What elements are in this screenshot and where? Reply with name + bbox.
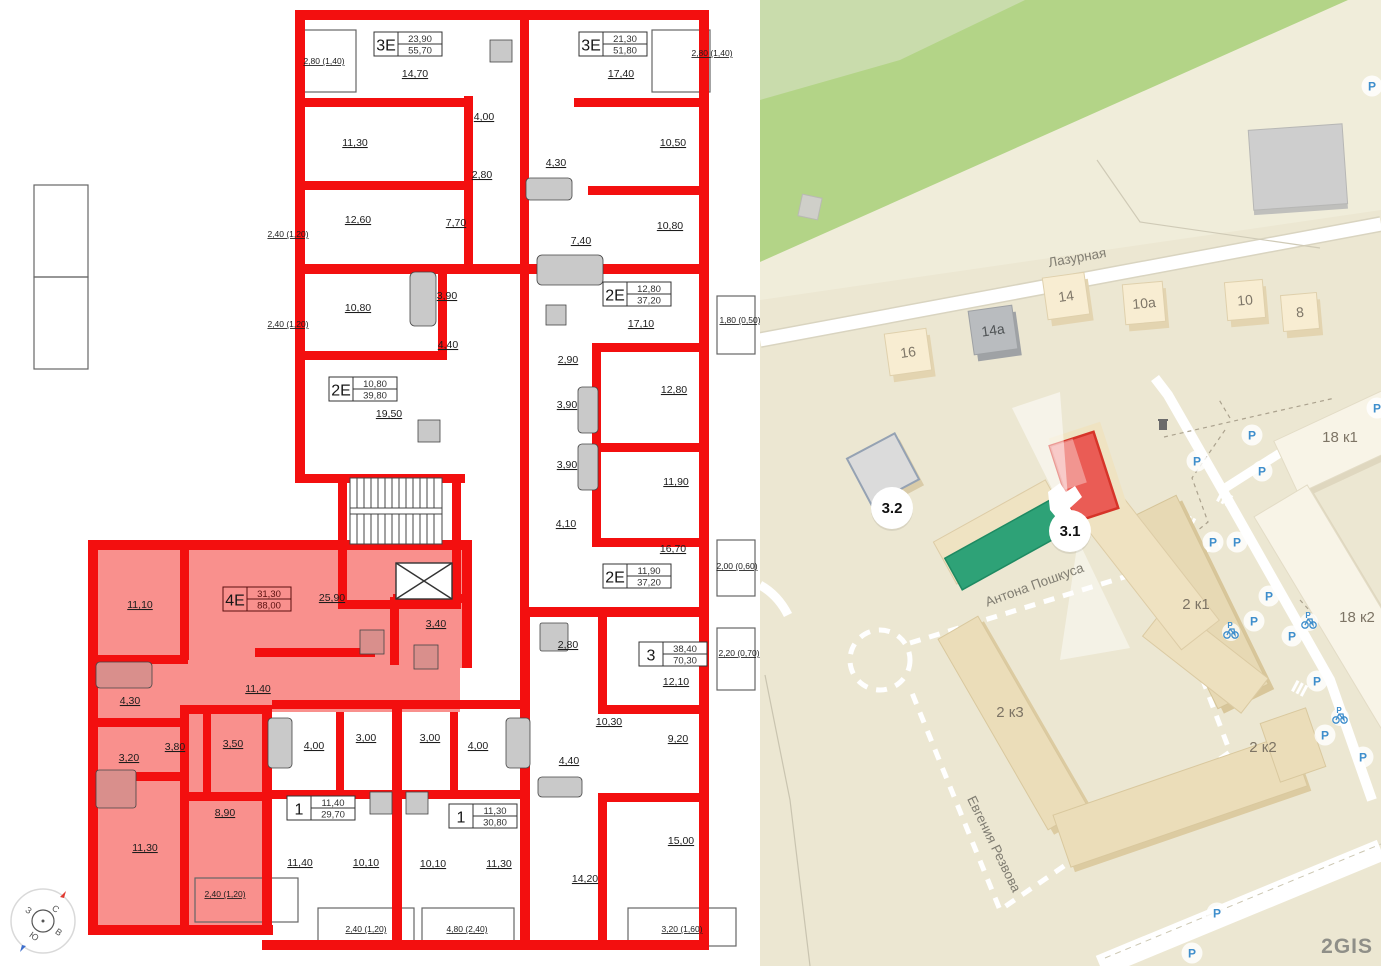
map-building-14а[interactable]: 14а (968, 305, 1022, 362)
room-area-label: 11,10 (127, 599, 153, 611)
svg-text:37,20: 37,20 (637, 296, 661, 307)
svg-text:30,80: 30,80 (483, 818, 507, 829)
svg-text:2Е: 2Е (605, 288, 625, 305)
parking-marker[interactable]: P (1307, 671, 1328, 692)
room-area-label: 4,40 (559, 755, 580, 767)
room-area-label: 25,90 (319, 592, 345, 604)
room-area-label: 2,40 (1,20) (267, 229, 308, 239)
room-area-label: 11,40 (245, 683, 271, 695)
room-area-label: 2,80 (1,40) (691, 48, 732, 58)
svg-text:3.1: 3.1 (1060, 523, 1081, 540)
svg-text:P: P (1305, 611, 1311, 620)
svg-text:P: P (1213, 907, 1221, 921)
building-number-2 к2: 2 к2 (1249, 739, 1276, 756)
building-number-2 к1: 2 к1 (1182, 596, 1209, 613)
room-area-label: 3,00 (420, 732, 441, 744)
room-area-label: 2,80 (1,40) (303, 56, 344, 66)
room-area-label: 4,00 (304, 740, 325, 752)
room-area-label: 2,80 (472, 169, 493, 181)
room-area-label: 3,50 (223, 738, 244, 750)
svg-text:2Е: 2Е (331, 383, 351, 400)
parking-marker[interactable]: P (1259, 586, 1280, 607)
svg-text:1: 1 (457, 810, 466, 827)
room-area-label: 3,00 (356, 732, 377, 744)
svg-text:P: P (1258, 465, 1266, 479)
parking-marker[interactable]: P (1282, 626, 1303, 647)
parking-marker[interactable]: P (1207, 903, 1228, 924)
room-area-label: 2,40 (1,20) (204, 889, 245, 899)
gray-building-large[interactable] (1248, 124, 1348, 215)
room-area-label: 16,70 (660, 543, 686, 555)
svg-text:P: P (1359, 751, 1367, 765)
svg-text:P: P (1373, 402, 1381, 416)
svg-text:P: P (1193, 455, 1201, 469)
room-area-label: 2,00 (0,60) (716, 561, 757, 571)
room-area-label: 17,40 (608, 68, 634, 80)
svg-text:P: P (1250, 615, 1258, 629)
room-area-label: 10,80 (345, 302, 371, 314)
svg-text:P: P (1248, 429, 1256, 443)
svg-text:10,80: 10,80 (363, 379, 387, 390)
svg-text:31,30: 31,30 (257, 589, 281, 600)
building-number-18 к2: 18 к2 (1339, 609, 1375, 626)
room-area-label: 11,40 (287, 857, 313, 869)
room-area-label: 4,30 (546, 157, 567, 169)
parking-marker[interactable]: P (1252, 461, 1273, 482)
parking-marker[interactable]: P (1242, 425, 1263, 446)
apartment-type-label[interactable]: 3Е21,3051,80 (579, 32, 647, 57)
room-area-label: 10,50 (660, 137, 686, 149)
room-area-label: 17,10 (628, 318, 654, 330)
svg-text:P: P (1321, 729, 1329, 743)
svg-text:11,90: 11,90 (637, 566, 660, 577)
trash-icon (1158, 419, 1168, 430)
svg-text:11,40: 11,40 (321, 798, 344, 809)
room-area-label: 14,20 (572, 873, 598, 885)
room-area-label: 4,00 (474, 111, 495, 123)
svg-text:70,30: 70,30 (673, 656, 697, 667)
map-building-8[interactable]: 8 (1280, 292, 1323, 338)
svg-text:38,40: 38,40 (673, 644, 697, 655)
parking-marker[interactable]: P (1353, 747, 1374, 768)
floorplan-panel: 14,7011,3012,607,704,002,8017,4010,5010,… (0, 0, 760, 966)
room-area-label: 3,90 (557, 399, 578, 411)
svg-text:P: P (1209, 536, 1217, 550)
room-area-label: 8,90 (215, 807, 236, 819)
room-area-label: 4,80 (2,40) (446, 924, 487, 934)
room-area-label: 11,30 (486, 858, 512, 870)
room-area-label: 10,10 (353, 857, 379, 869)
compass-icon[interactable]: С В Ю З (11, 889, 75, 953)
svg-text:P: P (1265, 590, 1273, 604)
svg-text:P: P (1368, 80, 1376, 94)
room-area-label: 11,90 (663, 476, 689, 488)
room-area-label: 3,90 (437, 290, 458, 302)
svg-text:29,70: 29,70 (321, 810, 345, 821)
building-number-2 к3: 2 к3 (996, 704, 1023, 721)
2gis-logo: 2GIS (1321, 935, 1373, 958)
parking-marker[interactable]: P (1244, 611, 1265, 632)
elevator (396, 563, 452, 599)
svg-text:P: P (1288, 630, 1296, 644)
apartment-type-label[interactable]: 2Е10,8039,80 (329, 377, 397, 402)
map-building-16[interactable]: 16 (884, 328, 935, 383)
room-area-label: 2,20 (0,70) (718, 648, 759, 658)
parking-marker[interactable]: P (1315, 725, 1336, 746)
building-number-18 к1: 18 к1 (1322, 429, 1358, 446)
svg-text:1: 1 (295, 802, 304, 819)
room-area-label: 2,40 (1,20) (267, 319, 308, 329)
map-panel[interactable]: 1614а1410а108 18 к118 к22 к12 к32 к2 Лаз… (760, 0, 1381, 966)
apartment-type-label[interactable]: 111,4029,70 (287, 796, 355, 821)
svg-text:14а: 14а (980, 320, 1006, 339)
room-area-label: 10,30 (596, 716, 622, 728)
svg-text:88,00: 88,00 (257, 601, 281, 612)
room-area-label: 9,20 (668, 733, 689, 745)
svg-text:P: P (1313, 675, 1321, 689)
svg-text:P: P (1227, 621, 1233, 630)
svg-text:10: 10 (1237, 291, 1254, 308)
svg-text:37,20: 37,20 (637, 578, 661, 589)
room-area-label: 4,40 (438, 339, 459, 351)
svg-text:P: P (1233, 536, 1241, 550)
map-building-14[interactable]: 14 (1042, 272, 1093, 327)
parking-marker[interactable]: P (1227, 532, 1248, 553)
staircase (350, 478, 442, 544)
small-structure (798, 194, 822, 220)
svg-text:2Е: 2Е (605, 570, 625, 587)
screenshot-root: 14,7011,3012,607,704,002,8017,4010,5010,… (0, 0, 1381, 966)
svg-text:39,80: 39,80 (363, 391, 387, 402)
room-area-label: 4,00 (468, 740, 489, 752)
apartment-type-label[interactable]: 338,4070,30 (639, 642, 707, 667)
room-area-label: 12,10 (663, 676, 689, 688)
room-area-label: 4,10 (556, 518, 577, 530)
svg-text:3Е: 3Е (376, 38, 396, 55)
svg-text:10а: 10а (1132, 294, 1157, 312)
room-area-label: 11,30 (342, 137, 368, 149)
apartment-type-label[interactable]: 3Е23,9055,70 (374, 32, 442, 57)
room-area-label: 3,80 (165, 741, 186, 753)
parking-marker[interactable]: P (1187, 451, 1208, 472)
room-area-label: 10,10 (420, 858, 446, 870)
room-area-label: 1,80 (0,50) (719, 315, 760, 325)
svg-text:55,70: 55,70 (408, 46, 432, 57)
parking-marker[interactable]: P (1203, 532, 1224, 553)
room-area-label: 3,20 (119, 752, 140, 764)
svg-text:12,80: 12,80 (637, 284, 661, 295)
room-area-label: 15,00 (668, 835, 694, 847)
room-area-label: 7,40 (571, 235, 592, 247)
apartment-type-label[interactable]: 2Е11,9037,20 (603, 564, 671, 589)
room-area-label: 3,40 (426, 618, 447, 630)
room-area-label: 2,90 (558, 354, 579, 366)
svg-text:11,30: 11,30 (483, 806, 506, 817)
apartment-type-label[interactable]: 111,3030,80 (449, 804, 517, 829)
svg-text:16: 16 (899, 343, 917, 361)
svg-text:3Е: 3Е (581, 38, 601, 55)
svg-text:3.2: 3.2 (882, 500, 903, 517)
svg-text:14: 14 (1057, 287, 1075, 305)
parking-marker[interactable]: P (1182, 943, 1203, 964)
svg-text:P: P (1336, 706, 1342, 715)
map-building-10[interactable]: 10 (1224, 279, 1269, 327)
svg-text:21,30: 21,30 (613, 34, 637, 45)
map-canvas: 1614а1410а108 18 к118 к22 к12 к32 к2 Лаз… (760, 0, 1381, 966)
room-area-label: 19,50 (376, 408, 402, 420)
floorplan-drawing: 14,7011,3012,607,704,002,8017,4010,5010,… (0, 0, 760, 966)
room-area-label: 4,30 (120, 695, 141, 707)
room-area-label: 12,80 (661, 384, 687, 396)
svg-text:P: P (1188, 947, 1196, 961)
room-area-label: 12,60 (345, 214, 371, 226)
apartment-type-label[interactable]: 4Е31,3088,00 (223, 587, 291, 612)
map-building-10а[interactable]: 10а (1122, 281, 1169, 332)
room-area-label: 3,20 (1,60) (661, 924, 702, 934)
svg-text:51,80: 51,80 (613, 46, 637, 57)
room-area-label: 14,70 (402, 68, 428, 80)
svg-text:8: 8 (1295, 304, 1304, 321)
room-area-label: 2,40 (1,20) (345, 924, 386, 934)
room-area-label: 2,80 (558, 639, 579, 651)
marker-3.2[interactable]: 3.2 (871, 487, 913, 531)
room-area-label: 10,80 (657, 220, 683, 232)
svg-text:4Е: 4Е (225, 593, 245, 610)
svg-text:23,90: 23,90 (408, 34, 432, 45)
svg-text:3: 3 (647, 648, 656, 665)
room-area-label: 7,70 (446, 217, 467, 229)
room-area-label: 11,30 (132, 842, 158, 854)
marker-3.1[interactable]: 3.1 (1049, 510, 1091, 554)
apartment-type-label[interactable]: 2Е12,8037,20 (603, 282, 671, 307)
room-area-label: 3,90 (557, 459, 578, 471)
